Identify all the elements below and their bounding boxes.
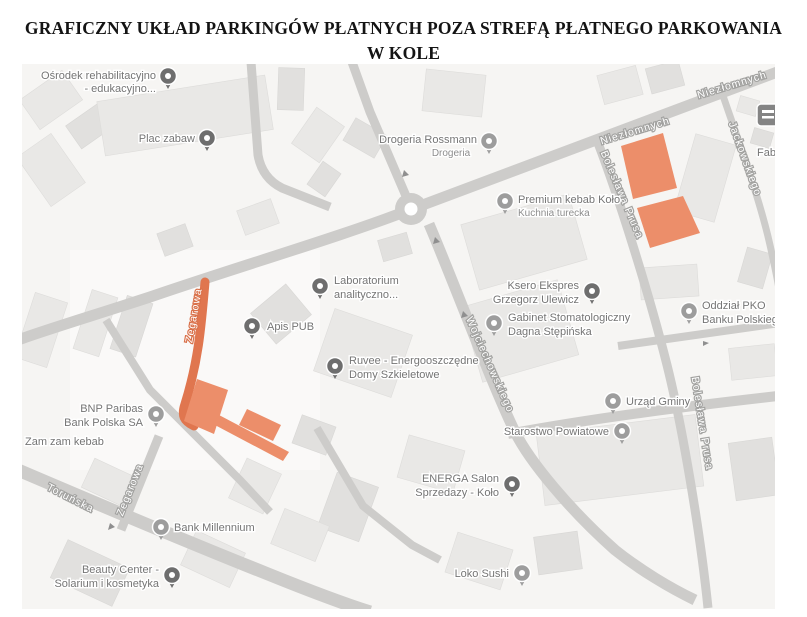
poi-label: Domy Szkieletowe	[349, 369, 439, 381]
poi-label: Apis PUB	[267, 321, 314, 333]
poi-label: Bank Polska SA	[64, 417, 144, 429]
poi-label: Ruvee - Energooszczędne	[349, 355, 479, 367]
poi-sublabel: Kuchnia turecka	[518, 208, 590, 219]
poi-label: Plac zabaw	[139, 133, 195, 145]
poi-label: Urząd Gminy	[626, 396, 691, 408]
poi-label: Drogeria Rossmann	[379, 134, 477, 146]
poi-label: Ośrodek rehabilitacyjno	[41, 70, 156, 82]
poi-label: Loko Sushi	[455, 568, 509, 580]
map-canvas[interactable]: Niezłomnych Niezłomnych Bolesława Prusa …	[0, 0, 807, 617]
poi-label: Gabinet Stomatologiczny	[508, 312, 631, 324]
clipped-label-box	[781, 106, 791, 124]
poi-label: Oddział PKO	[702, 300, 766, 312]
poi-label: Grzegorz Ulewicz	[493, 294, 579, 306]
poi-label: Zam zam kebab	[25, 436, 104, 448]
poi-label: Starostwo Powiatowe	[504, 426, 609, 438]
poi-label-clipped: Fabr	[757, 147, 780, 159]
poi-label: Solarium i kosmetyka	[54, 578, 159, 590]
poi-label: Premium kebab Koło	[518, 194, 620, 206]
poi-label: ENERGA Salon	[422, 473, 499, 485]
poi-label: - edukacyjno...	[84, 83, 156, 95]
factory-icon[interactable]	[757, 104, 779, 126]
poi-label: Ksero Ekspres	[507, 280, 579, 292]
poi-label: BNP Paribas	[80, 403, 143, 415]
roundabout-center	[405, 203, 418, 216]
poi-label: Laboratorium	[334, 275, 399, 287]
poi-label: Beauty Center -	[82, 564, 159, 576]
poi-label: Banku Polskiego	[702, 314, 784, 326]
poi-label: analityczno...	[334, 289, 398, 301]
poi-label: Sprzedazy - Koło	[415, 487, 499, 499]
poi-label: Bank Millennium	[174, 522, 255, 534]
poi-label: Dagna Stępińska	[508, 326, 593, 338]
poi-sublabel: Drogeria	[432, 148, 471, 159]
